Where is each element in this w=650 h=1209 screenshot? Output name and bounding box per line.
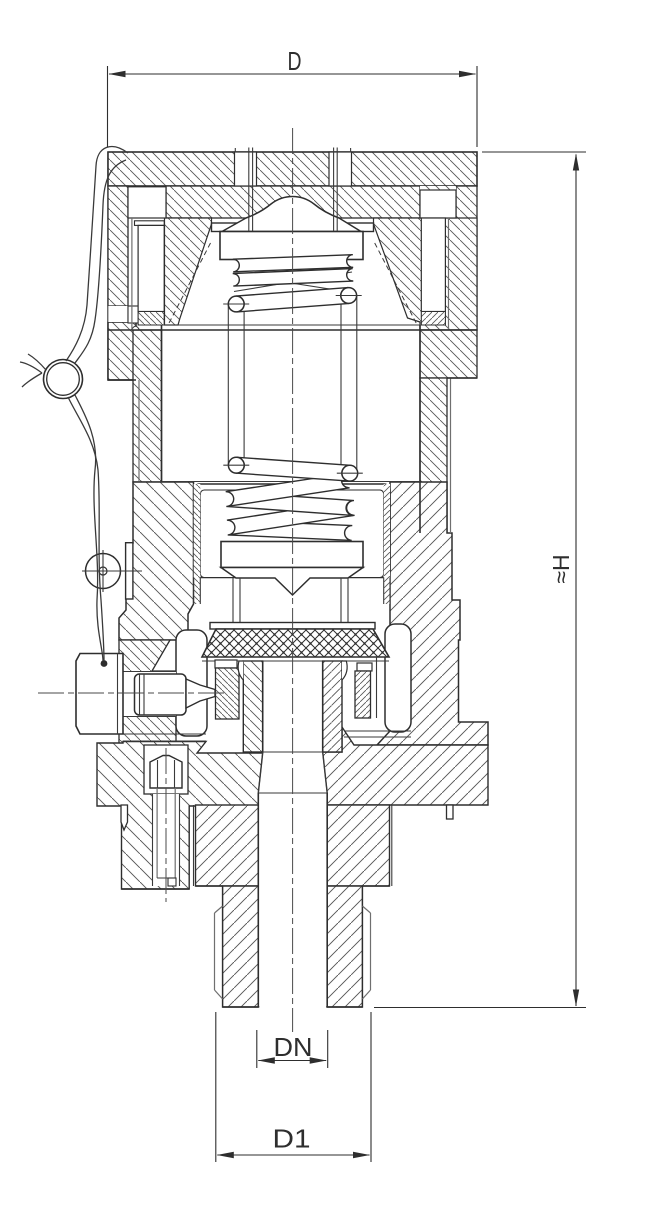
svg-text:D1: D1 — [273, 1124, 311, 1154]
svg-text:DN: DN — [274, 1032, 313, 1062]
svg-text:≈H: ≈H — [548, 554, 574, 583]
svg-text:D: D — [288, 46, 302, 76]
